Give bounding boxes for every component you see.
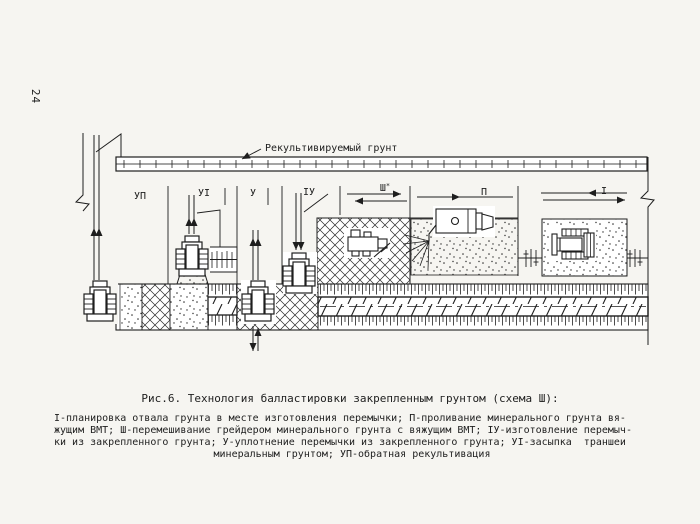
figure-caption: Рис.6. Технология балластировки закрепле… (0, 392, 700, 405)
legend-line-3: ки из закрепленного грунта; У-уплотнение… (54, 437, 650, 449)
trench-band (116, 284, 648, 330)
pipeline (318, 284, 648, 330)
legend-line-2: жущим ВМТ; Ш-перемешивание грейдером мин… (54, 425, 650, 437)
grader-top-view (344, 228, 390, 258)
scanned-document-page: { "page": { "number": "24" }, "diagram":… (0, 0, 700, 524)
stage-label-iii: Ш* (380, 182, 390, 194)
recultivated-soil-label: Рекультивируемый грунт (265, 142, 397, 154)
bush-symbol (521, 249, 541, 267)
stage-label-v: У (250, 188, 256, 199)
recultivated-soil-band: Рекультивируемый грунт (116, 142, 647, 171)
stage-label-vi: УI (198, 188, 210, 199)
trench-cross-section (208, 284, 237, 330)
compactor-stage-v (241, 230, 276, 351)
mineral-backfill (120, 284, 142, 330)
stage-label-iv: IУ (303, 187, 315, 198)
figure-legend: I-планировка отвала грунта в месте изгот… (54, 413, 650, 461)
mineral-backfill (170, 284, 208, 330)
stage-label-vii: УП (134, 191, 146, 202)
bulldozer-top-view (550, 227, 596, 261)
bush-symbol (625, 249, 645, 267)
legend-line-1: I-планировка отвала грунта в месте изгот… (54, 413, 650, 425)
legend-line-4: минеральным грунтом; УП-обратная рекульт… (54, 449, 650, 461)
stage-label-ii: П (481, 187, 487, 198)
stabilized-fill (142, 284, 170, 330)
compactor-stage-vi (174, 195, 210, 276)
compactor-stage-vii (82, 135, 118, 324)
stage-label-i: I (601, 186, 607, 197)
figure-diagram: Рекультивируемый грунт УП УI У IУ Ш* П I (0, 0, 700, 388)
stage-labels: УП УI У IУ Ш* П I (134, 182, 607, 202)
